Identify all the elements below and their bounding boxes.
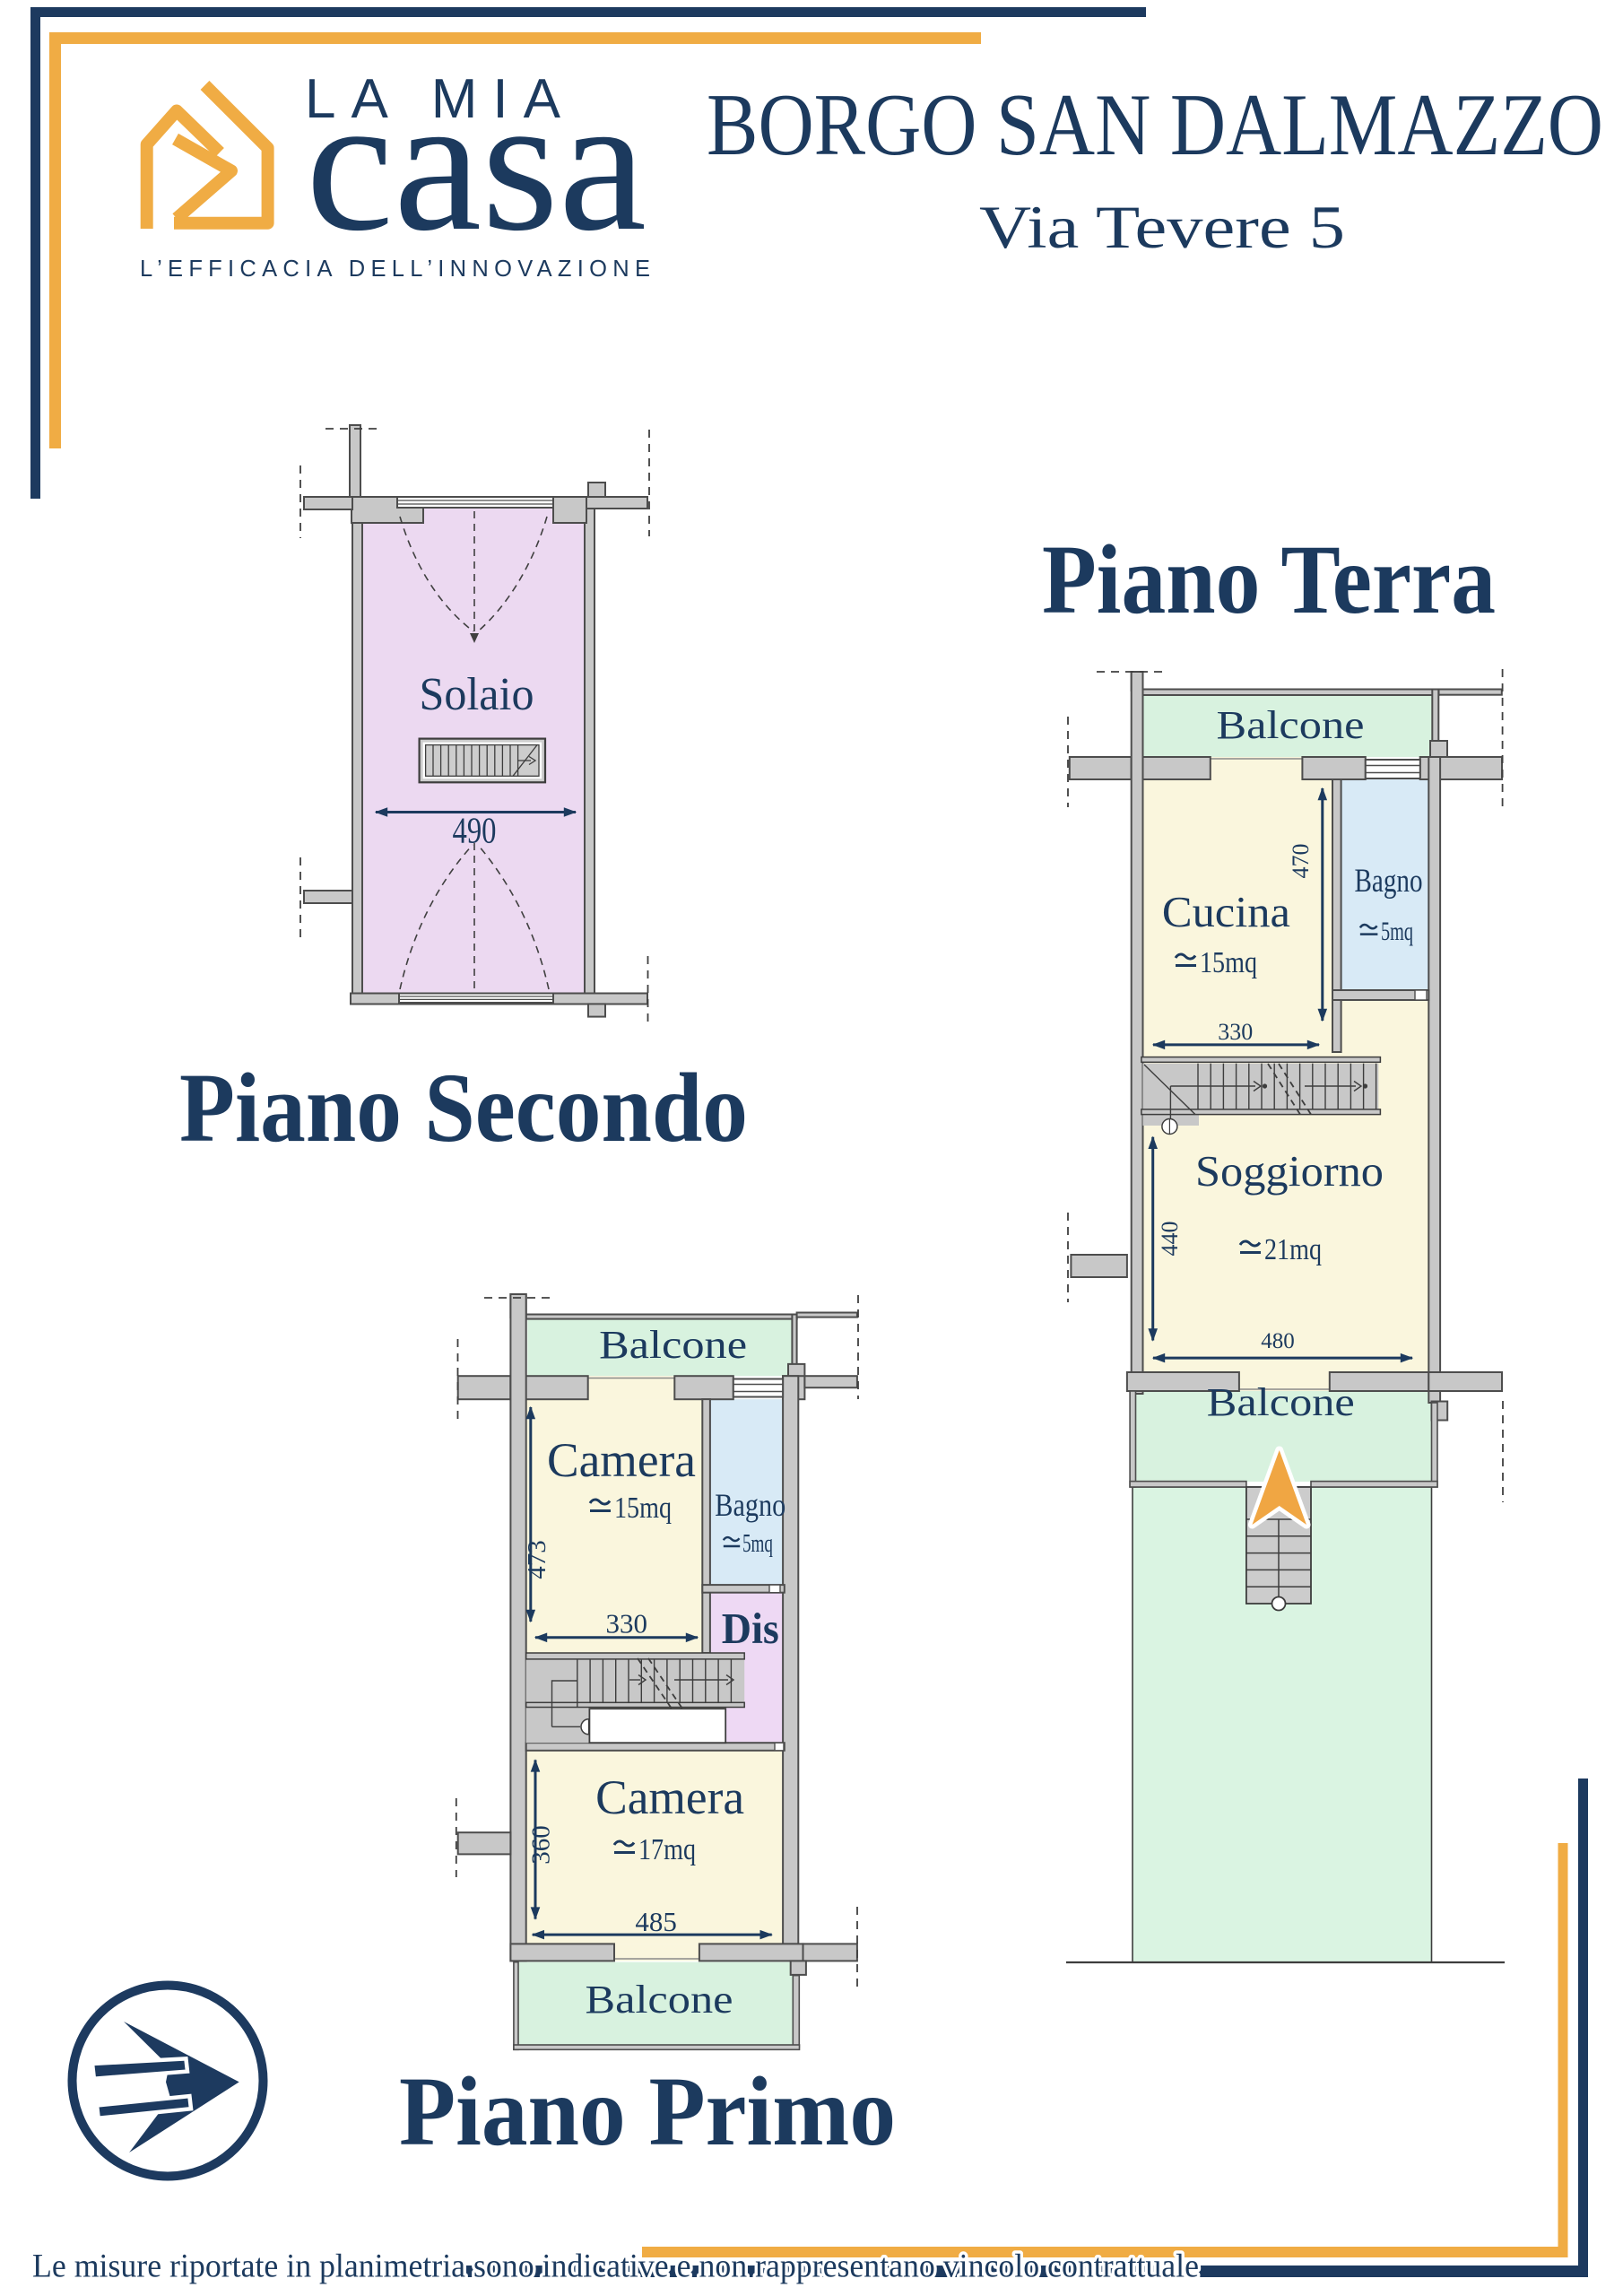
svg-text:21mq: 21mq [1264,1233,1322,1266]
svg-text:5mq: 5mq [742,1530,773,1558]
svg-text:Via Tevere 5: Via Tevere 5 [979,193,1345,261]
svg-text:Cucina: Cucina [1162,887,1290,936]
svg-text:Bagno: Bagno [715,1487,785,1523]
svg-text:360: 360 [527,1825,556,1865]
svg-text:473: 473 [523,1540,551,1579]
svg-text:Balcone: Balcone [1217,703,1365,747]
svg-text:470: 470 [1288,844,1314,879]
svg-text:Balcone: Balcone [1207,1380,1355,1424]
svg-text:Solaio: Solaio [420,669,534,720]
svg-text:Soggiorno: Soggiorno [1195,1146,1384,1196]
svg-text:330: 330 [606,1608,648,1639]
svg-text:440: 440 [1157,1222,1183,1257]
svg-text:Camera: Camera [595,1770,744,1824]
svg-text:Dis: Dis [722,1604,779,1653]
svg-text:Balcone: Balcone [599,1323,747,1367]
svg-text:Camera: Camera [547,1433,696,1487]
svg-text:490: 490 [453,810,497,851]
svg-text:330: 330 [1218,1019,1253,1045]
svg-text:Bagno: Bagno [1355,863,1423,900]
svg-text:Piano Secondo: Piano Secondo [179,1053,748,1162]
svg-text:485: 485 [635,1906,677,1937]
svg-text:Piano Terra: Piano Terra [1042,525,1496,634]
svg-text:17mq: 17mq [638,1833,696,1866]
svg-text:5mq: 5mq [1381,917,1413,946]
svg-text:480: 480 [1261,1329,1295,1353]
svg-text:casa: casa [306,56,647,272]
svg-text:Balcone: Balcone [586,1978,733,2022]
svg-text:Piano Primo: Piano Primo [399,2057,896,2166]
svg-text:15mq: 15mq [614,1492,672,1525]
svg-text:Le misure riportate in planime: Le misure riportate in planimetria sono … [32,2248,1199,2285]
svg-text:15mq: 15mq [1200,946,1257,979]
svg-text:BORGO SAN DALMAZZO: BORGO SAN DALMAZZO [707,76,1603,174]
